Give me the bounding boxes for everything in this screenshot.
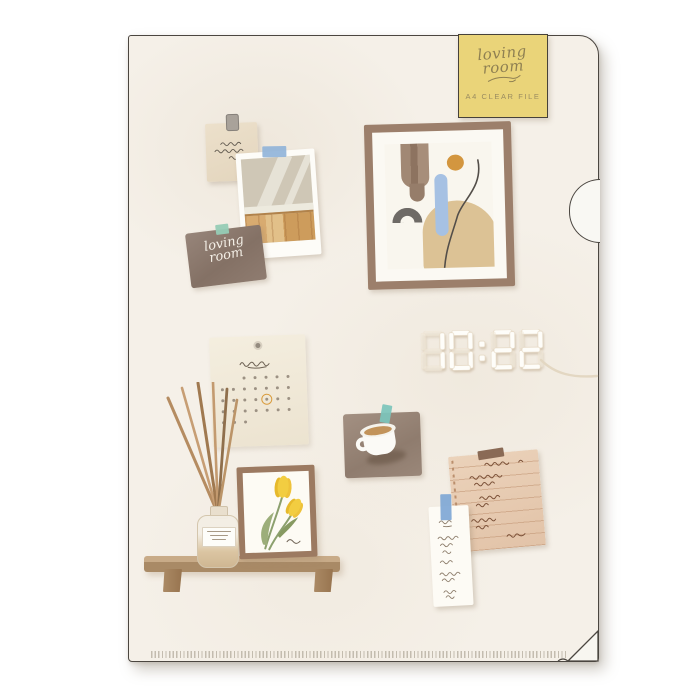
calendar-pin-icon (255, 343, 260, 348)
art-frame (364, 121, 515, 290)
clock-cord (537, 354, 599, 382)
abstract-art (384, 142, 494, 270)
tulip-signature (287, 539, 300, 543)
label-line (212, 539, 226, 541)
diffuser-bottle (197, 506, 239, 568)
tulip-art (243, 471, 312, 553)
washi-tape-mint (215, 224, 229, 236)
corner-cut (557, 620, 599, 662)
calendar-date-dot (287, 397, 290, 400)
washi-tape-blue (262, 146, 286, 157)
receipt-note (428, 505, 473, 607)
calendar-date-dot (288, 408, 291, 411)
calendar-date-dot (264, 376, 267, 379)
calendar-date-dot (275, 375, 278, 378)
loving-room-card: loving room (185, 225, 267, 289)
product-label: loving room A4 CLEAR FILE (458, 34, 548, 118)
digital-clock (421, 327, 554, 373)
receipt-handwriting (433, 517, 469, 603)
diffuser-label (202, 527, 236, 547)
calendar-date-dot (242, 376, 245, 379)
product-photo: loving room A4 CLEAR FILE (0, 0, 700, 700)
calendar-date-dot (253, 376, 256, 379)
label-line (207, 531, 231, 533)
clear-file: loving room A4 CLEAR FILE (128, 35, 599, 662)
clock-display (421, 329, 544, 371)
tulip-bloom (274, 475, 292, 498)
label-line (210, 535, 228, 537)
coffee-card (343, 412, 422, 479)
tulip-bloom (284, 495, 306, 519)
weld-serration (151, 651, 566, 658)
calendar-title-script (236, 357, 282, 371)
coffee-cup (359, 420, 409, 466)
thumb-notch (569, 179, 600, 243)
label-subtitle: A4 CLEAR FILE (459, 92, 547, 101)
shelf-leg-right (314, 569, 333, 592)
card-script: loving room (186, 231, 265, 270)
art-wavy-line (384, 142, 494, 270)
washi-tape-blue-vertical (440, 494, 451, 520)
calendar-date-dot (287, 386, 290, 389)
shelf-leg-left (163, 569, 182, 592)
calendar-date-dot (286, 375, 289, 378)
label-script: loving room (458, 43, 549, 87)
note-clip-icon (226, 114, 240, 131)
tulip-frame (236, 465, 317, 560)
